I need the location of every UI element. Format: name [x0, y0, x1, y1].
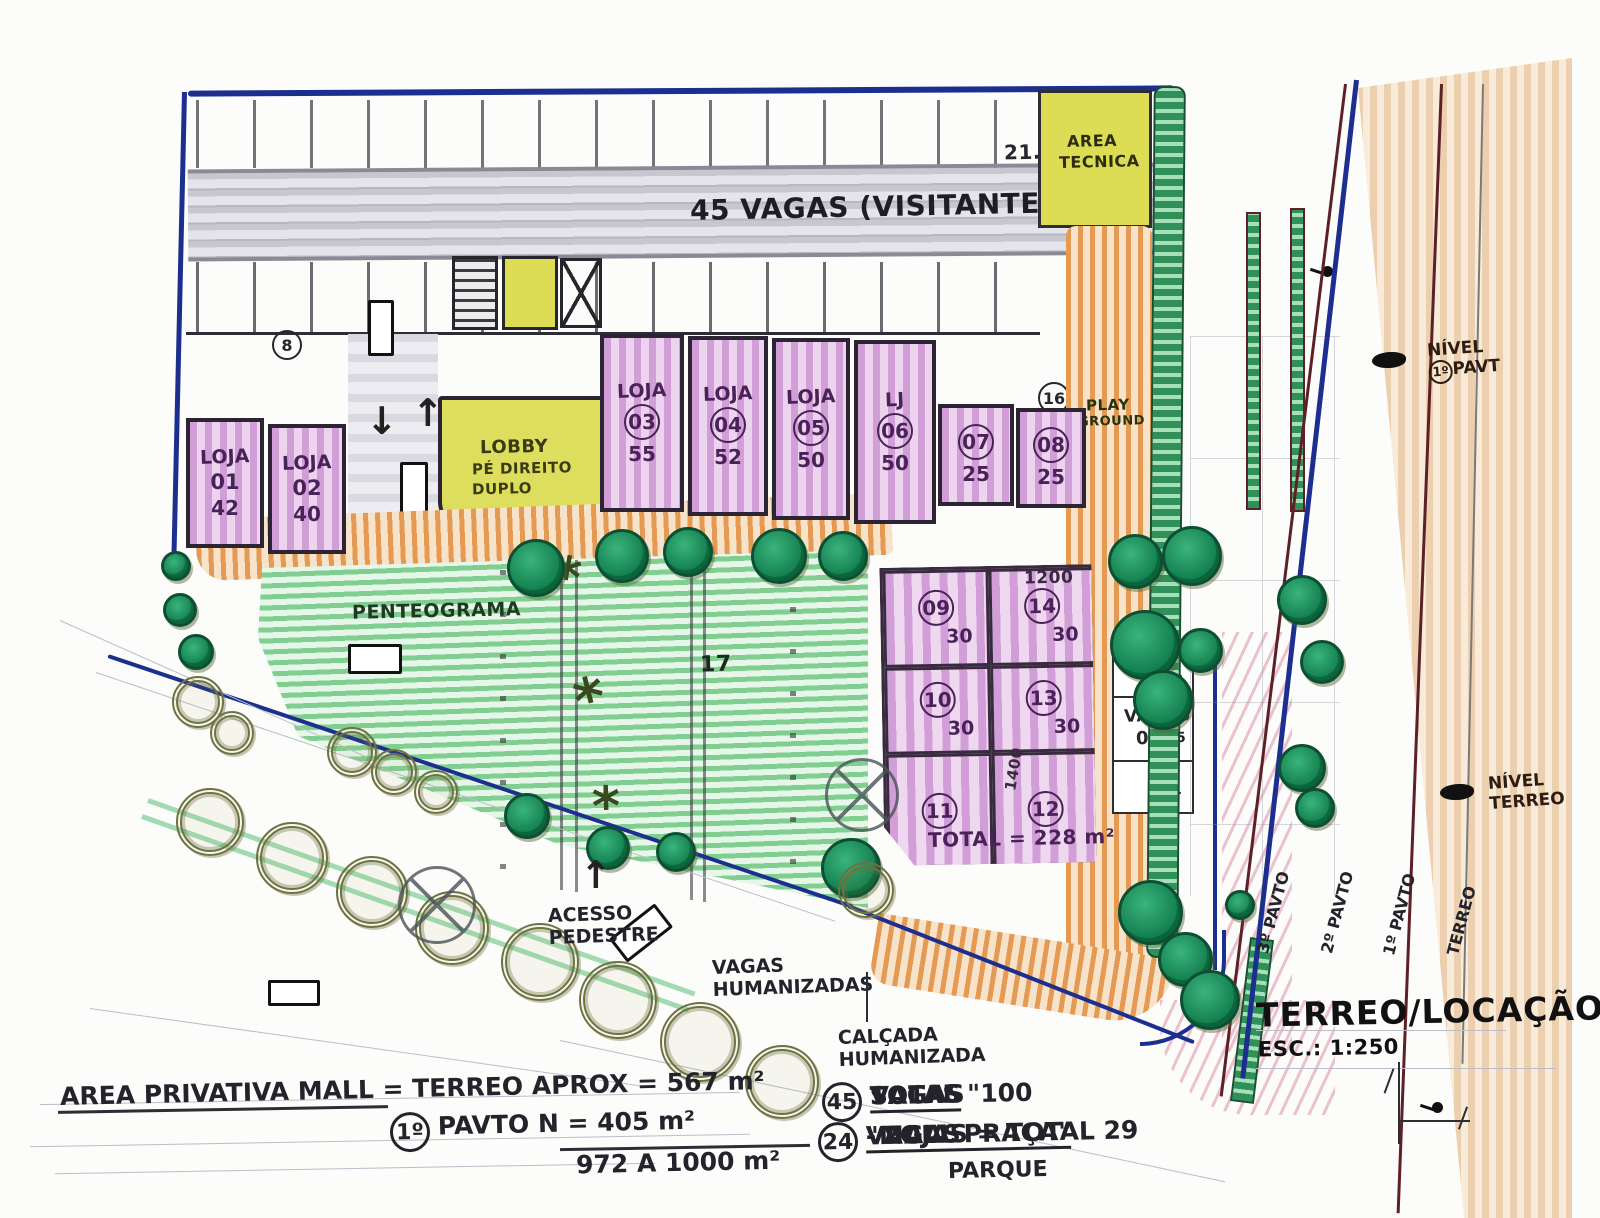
plan-scale: ESC.: 1:250: [1258, 1035, 1399, 1062]
shop-area: 40: [293, 502, 321, 526]
parque-label: PARQUE: [948, 1157, 1048, 1184]
circled-45: 45: [822, 1082, 863, 1123]
bay-8-badge: 8: [272, 330, 302, 360]
shop-number: 05: [793, 410, 829, 446]
tree-icon: [656, 832, 696, 872]
acesso-arrow-icon: ↑: [580, 856, 612, 894]
tree-icon: [178, 634, 214, 670]
unit-area: 30: [1052, 623, 1079, 645]
stairs-icon: [452, 256, 498, 330]
shop-loja-01: LOJA 01 42: [186, 418, 264, 548]
leader-line: [866, 972, 868, 1022]
shop-area: 50: [797, 448, 825, 472]
unit-area: 30: [1054, 715, 1081, 737]
calcada-label: CALÇADA HUMANIZADA: [838, 1028, 839, 1050]
tree-icon: [595, 529, 649, 583]
area-tecnica-label-1: AREA: [1067, 130, 1149, 151]
block-total: TOTAL = 228 m²: [928, 824, 1115, 852]
tree-icon: [327, 727, 377, 777]
shop-lj-06: LJ 06 50: [854, 340, 936, 524]
tree-icon: [507, 539, 565, 597]
parking-aisle-line: [703, 555, 706, 902]
bench-icon: [268, 980, 320, 1006]
level-1-label: NÍVEL 1º PAVT: [1426, 339, 1453, 385]
tree-icon: [1110, 610, 1180, 680]
vh-l2: HUMANIZADAS: [712, 974, 873, 1001]
site-boundary-top: [188, 85, 1174, 96]
shop-area: 52: [714, 445, 742, 469]
tree-icon: [161, 551, 191, 581]
title-underline: [1256, 1068, 1556, 1069]
tree-icon: [1300, 640, 1344, 684]
crossed-tree-icon: [398, 866, 476, 944]
unit-number: 14: [1024, 587, 1061, 624]
site-boundary-left: [171, 92, 187, 560]
shop-name: LOJA: [200, 445, 250, 469]
tree-icon: [336, 856, 408, 928]
unit-number: 13: [1025, 679, 1062, 716]
shop-name: LOJA: [282, 451, 332, 475]
crossed-tree-icon: [825, 758, 899, 832]
lobby-label-1: LOBBY: [480, 435, 600, 459]
site-plan-sketch: 45 VAGAS (VISITANTES) 21. 8 16 AREA TECN…: [0, 0, 1600, 1218]
tree-icon: [1278, 744, 1326, 792]
tree-icon: [371, 749, 417, 795]
level-2-label: NÍVEL TERREO: [1487, 774, 1488, 794]
hedge-strip: [1146, 86, 1186, 958]
title-underline: [1256, 1030, 1506, 1031]
tree-icon: [414, 770, 458, 814]
tree-icon: [1108, 534, 1163, 589]
dim-tick: [1384, 1068, 1395, 1093]
tree-icon: [1180, 970, 1240, 1030]
unit-09: 09 30: [882, 569, 990, 668]
unit-10: 10 30: [884, 666, 992, 755]
tree-icon: [163, 593, 197, 627]
shop-number: 07: [958, 424, 994, 460]
parking-aisle-line: [560, 560, 563, 890]
lamp-icon: [1432, 1102, 1443, 1113]
dim-mark: [1398, 1062, 1400, 1144]
unit-number: 09: [918, 589, 955, 626]
summary-line-1: AREA PRIVATIVA MALL = TERREO APROX = 567…: [60, 1066, 765, 1111]
stall-ticks: [790, 565, 796, 885]
unit-number: 12: [1027, 791, 1064, 828]
tree-icon: [256, 822, 328, 894]
hedge-row: [1246, 212, 1261, 510]
circled-24: 24: [818, 1122, 859, 1163]
tree-icon: [1178, 628, 1223, 673]
stall-count: 17: [700, 652, 732, 678]
shop-loja-02: LOJA 02 40: [268, 424, 346, 554]
shop-name: LOJA: [786, 385, 836, 409]
shop-07: 07 25: [938, 404, 1014, 506]
vagas-humanizadas-label: VAGAS HUMANIZADAS: [712, 958, 713, 980]
shop-08: 08 25: [1016, 408, 1086, 508]
shop-area: 42: [211, 496, 239, 520]
shop-name: LOJA: [703, 382, 753, 406]
shop-loja-03: LOJA 03 55: [600, 334, 684, 512]
unit-area: 30: [946, 625, 973, 647]
garage-columns-row2: [196, 262, 1038, 332]
tree-icon: [1162, 526, 1222, 586]
r2c: - LOJAS = TOTAL 29: [866, 1115, 1139, 1150]
tree-icon: [210, 711, 254, 755]
parking-aisle-line: [575, 560, 578, 892]
shop-area: 55: [628, 442, 656, 466]
shop-number: 04: [710, 407, 746, 443]
tree-icon: [838, 862, 894, 918]
summary-l2-text: PAVTO N = 405 m²: [438, 1106, 696, 1141]
unit-number: 11: [921, 793, 958, 830]
area-tecnica-box: AREA TECNICA: [1038, 90, 1152, 228]
tree-icon: [818, 531, 868, 581]
circled-1-pavto: 1º: [390, 1112, 431, 1153]
shop-number: 03: [624, 404, 660, 440]
penteograma-label: PENTEOGRAMA: [352, 598, 521, 624]
shop-number: 08: [1033, 427, 1069, 463]
shop-loja-04: LOJA 04 52: [688, 336, 768, 516]
tree-icon: [504, 793, 550, 839]
tree-icon: [1295, 788, 1335, 828]
summary-line-3: 972 A 1000 m²: [576, 1146, 781, 1180]
block-dim-top: 1200: [1024, 567, 1074, 588]
acesso-label: ACESSO PEDESTRE: [548, 906, 549, 928]
unit-area: 30: [948, 717, 975, 739]
level-1-circle: 1º: [1428, 360, 1454, 386]
garage-columns-row1: [196, 100, 1038, 168]
dim-mark: [1398, 1120, 1470, 1122]
vagas-salas-line: 45 VAGAS SALAS TOTAL "100: [822, 1081, 871, 1122]
note-21: 21.: [1004, 140, 1041, 165]
unit-13: 13 30: [990, 664, 1098, 753]
shop-number: 02: [292, 476, 321, 500]
level-1-pavt: PAVT: [1452, 356, 1501, 380]
shop-area: 25: [1037, 465, 1065, 489]
tree-icon: [1133, 670, 1193, 730]
shop-name: LOJA: [617, 379, 667, 403]
plan-title: TERREO/LOCAÇÃO: [1256, 988, 1600, 1034]
lobby-label-3: DUPLO: [472, 478, 600, 499]
lobby-upper-box: [502, 256, 558, 330]
acesso-l2: PEDESTRE: [548, 924, 659, 950]
shop-area: 50: [881, 451, 909, 475]
tree-icon: [663, 527, 713, 577]
ruling-line: [55, 1163, 655, 1174]
lobby-label-2: PÉ DIREITO: [472, 458, 600, 479]
block-units-09-14: 09 30 14 30 10 30 13 30 11 12: [879, 564, 1096, 866]
play-label-2: GROUND: [1078, 413, 1145, 429]
shaft-icon: [560, 258, 602, 328]
shop-number: 01: [210, 470, 239, 494]
col-label-1pavto: 1º PAVTO: [1379, 846, 1427, 957]
vagas-mall-line: 24 VAGAS "MALL PRAÇA" - LOJAS = TOTAL 29: [818, 1121, 867, 1162]
tree-icon: [1277, 575, 1327, 625]
tree-icon: [579, 961, 657, 1039]
unit-number: 10: [919, 681, 956, 718]
shop-area: 25: [962, 462, 990, 486]
r1c: TOTAL "100: [870, 1078, 1033, 1111]
down-arrow-icon: ↓: [366, 402, 398, 440]
tree-icon: [176, 788, 244, 856]
summary-line-2: 1º PAVTO N = 405 m²: [390, 1111, 439, 1152]
ch-l2: HUMANIZADA: [838, 1045, 986, 1072]
play-label-1: PLAY: [1086, 396, 1130, 415]
elevator-icon: [368, 300, 394, 356]
tree-icon: [751, 528, 807, 584]
shop-name: LJ: [885, 389, 905, 412]
tree-icon: [1225, 890, 1255, 920]
shop-number: 06: [877, 413, 913, 449]
bench-icon: [348, 644, 402, 674]
shop-loja-05: LOJA 05 50: [772, 338, 850, 520]
area-tecnica-label-2: TECNICA: [1059, 151, 1149, 172]
